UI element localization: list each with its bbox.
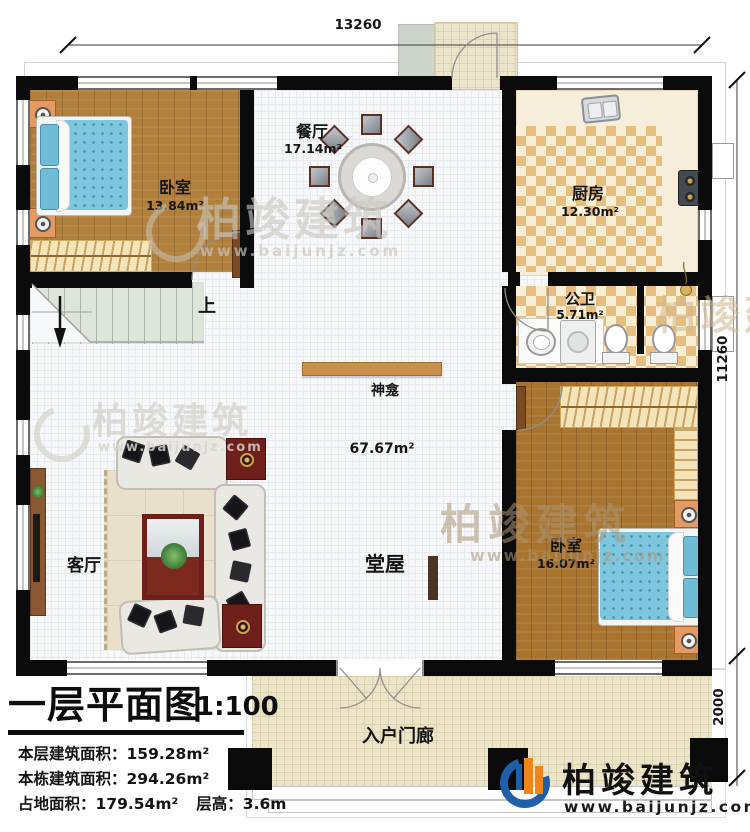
window [555,661,662,675]
stat-value: 3.6m [243,795,287,813]
stat-value: 159.28m² [127,745,210,763]
hall-cabinet [428,556,438,600]
logo-building-icon [516,764,522,790]
window [557,76,663,90]
floor-porch [252,676,712,786]
stat-label: 层高： [196,795,243,813]
window [16,100,30,165]
room-label-porch: 入户门廊 [348,728,448,747]
room-label-bedroom2: 卧室 [536,538,596,555]
wall [207,660,336,676]
room-label-bathroom: 公卫 [552,292,608,308]
wall [240,90,254,288]
toilet [604,324,628,354]
stat-line-2: 本栋建筑面积：294.26m² [18,767,209,789]
corner-table [222,604,262,648]
room-area-kitchen: 12.30m² [552,205,628,218]
window [78,76,190,90]
dim-label-top: 13260 [334,18,382,32]
dim-label-right-lower: 2000 [712,672,726,742]
dining-chair [309,166,330,187]
exterior-ledge [712,143,734,179]
window [67,661,207,675]
wall [502,90,516,272]
room-label-living: 客厅 [56,558,112,576]
floor-plan: 卧室 13.84m² 餐厅 17.14m² 厨房 12.30m² 公卫 5.71… [0,0,750,832]
window [197,76,277,90]
logo-building-icon [535,766,543,794]
room-label-bedroom1: 卧室 [145,180,205,197]
bath-sink [526,328,556,356]
toilet-tank [602,352,630,364]
porch-step-1 [252,786,712,800]
logo-building-icon [524,758,533,794]
porch-column [690,738,728,782]
wall [16,660,67,676]
dim-label-right: 11260 [716,324,730,394]
window [698,300,712,350]
room-area-hall: 67.67m² [342,442,422,457]
plant [161,543,187,569]
room-label-kitchen: 厨房 [558,186,618,203]
bed-sheet [668,532,684,622]
wall [16,272,192,288]
sofa-cushion [182,604,204,626]
room-area-dining: 17.14m² [278,142,348,155]
stove [678,170,700,206]
wall [424,660,555,676]
window [16,315,30,350]
room-area-bedroom2: 16.07m² [528,557,604,570]
dining-chair [413,166,434,187]
title-rule [8,730,244,735]
dim-tick [729,770,745,786]
room-label-hall: 堂屋 [352,554,418,575]
wall [190,76,197,90]
wall [698,90,712,210]
window [16,505,30,590]
plant [32,486,44,498]
stat-value: 294.26m² [127,770,210,788]
dining-table-center [368,173,378,183]
stat-label: 本栋建筑面积： [18,770,127,788]
room-label-dining: 餐厅 [282,124,342,141]
pillow [683,578,699,618]
wall [698,240,712,300]
wall [502,430,516,660]
window [16,420,30,455]
wall [16,76,30,100]
sofa-cushion [148,444,171,467]
dim-tick [729,72,745,88]
wall-divider [637,286,644,354]
wall [663,76,712,90]
window [698,210,712,240]
room-area-bathroom: 5.71m² [550,309,610,322]
dining-chair [361,114,382,135]
wall [508,272,520,286]
porch-step-2 [268,800,712,813]
wall [548,272,712,286]
entry-door-opening [336,660,424,676]
dim-tick [60,37,76,53]
pillow [683,536,699,576]
coffee-table [142,514,204,600]
door-leaf [516,386,526,430]
wall [502,368,712,382]
altar-label: 神龛 [360,384,410,399]
wardrobe [30,240,152,272]
dim-tick [729,648,745,664]
dim-tick [694,37,710,53]
room-area-bedroom1: 13.84m² [140,199,210,212]
dining-chair [361,218,382,239]
toilet-tank [650,352,678,364]
wall [16,165,30,210]
brand-logo [498,752,560,816]
staircase [32,282,204,344]
washing-machine [560,320,596,364]
stat-value: 179.54m² [96,795,179,813]
sofa-cushion [229,560,252,583]
stat-line-1: 本层建筑面积：159.28m² [18,742,209,764]
bed-blanket [62,120,128,210]
porch-column [228,748,272,790]
pillow [40,124,59,166]
pillow [40,168,59,210]
back-porch-step [398,24,436,78]
tv [33,514,40,582]
stat-label: 占地面积： [18,795,96,813]
wall [500,76,557,90]
stat-line-3: 占地面积：179.54m²层高：3.6m [18,792,286,814]
toilet [652,324,676,354]
kitchen-sink [581,94,622,124]
wall [277,76,452,90]
closet [560,386,698,428]
stat-label: 本层建筑面积： [18,745,127,763]
plan-title: 一层平面图 [8,686,203,724]
stairs-up-label: 上 [194,298,220,317]
window [16,210,30,245]
wall [16,350,30,420]
wall [662,660,712,676]
altar-table [302,362,442,376]
wall [698,350,712,676]
wall [16,455,30,505]
corner-table [226,438,266,480]
